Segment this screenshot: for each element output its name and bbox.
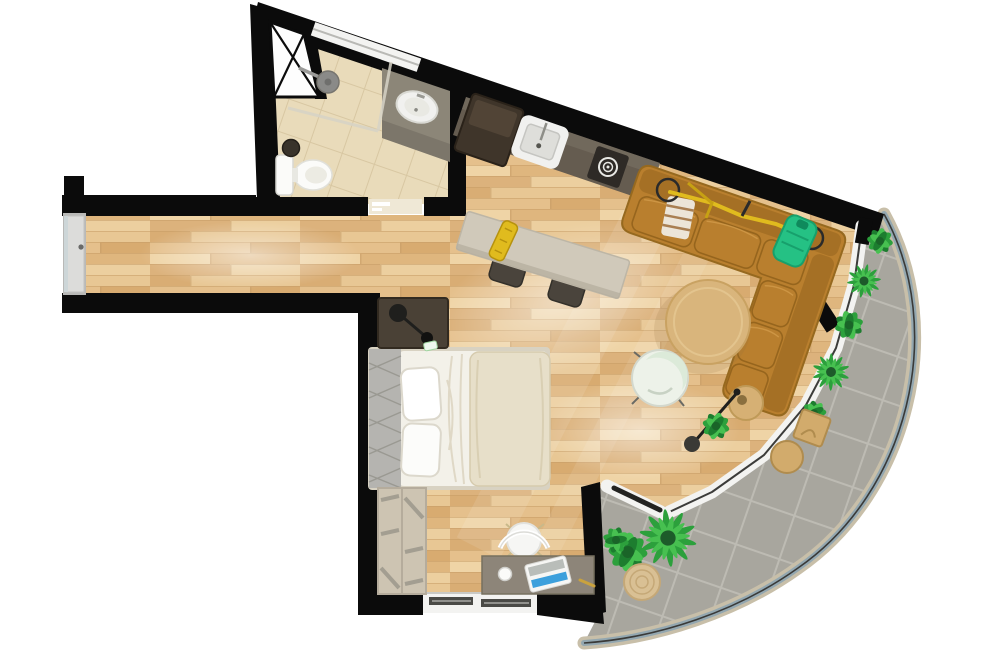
entrance-door[interactable] xyxy=(63,213,86,295)
duvet xyxy=(470,352,550,486)
lounge-chair[interactable] xyxy=(632,350,688,406)
coffee-table[interactable] xyxy=(666,280,750,364)
work-corner-window xyxy=(423,592,537,613)
bathroom-door-threshold[interactable] xyxy=(369,199,422,214)
floor-plan-stage xyxy=(0,0,1000,650)
mug[interactable] xyxy=(499,568,512,581)
nightstand[interactable] xyxy=(378,298,448,351)
wardrobe[interactable] xyxy=(378,488,426,594)
waste-bin[interactable] xyxy=(283,140,300,157)
bed[interactable] xyxy=(368,347,550,490)
headboard xyxy=(369,349,401,488)
door-handle[interactable] xyxy=(78,244,83,249)
floor-plan-svg xyxy=(0,0,1000,650)
woven-basket[interactable] xyxy=(624,564,660,600)
balcony-round-stool[interactable] xyxy=(771,441,803,473)
desk[interactable] xyxy=(482,555,594,594)
